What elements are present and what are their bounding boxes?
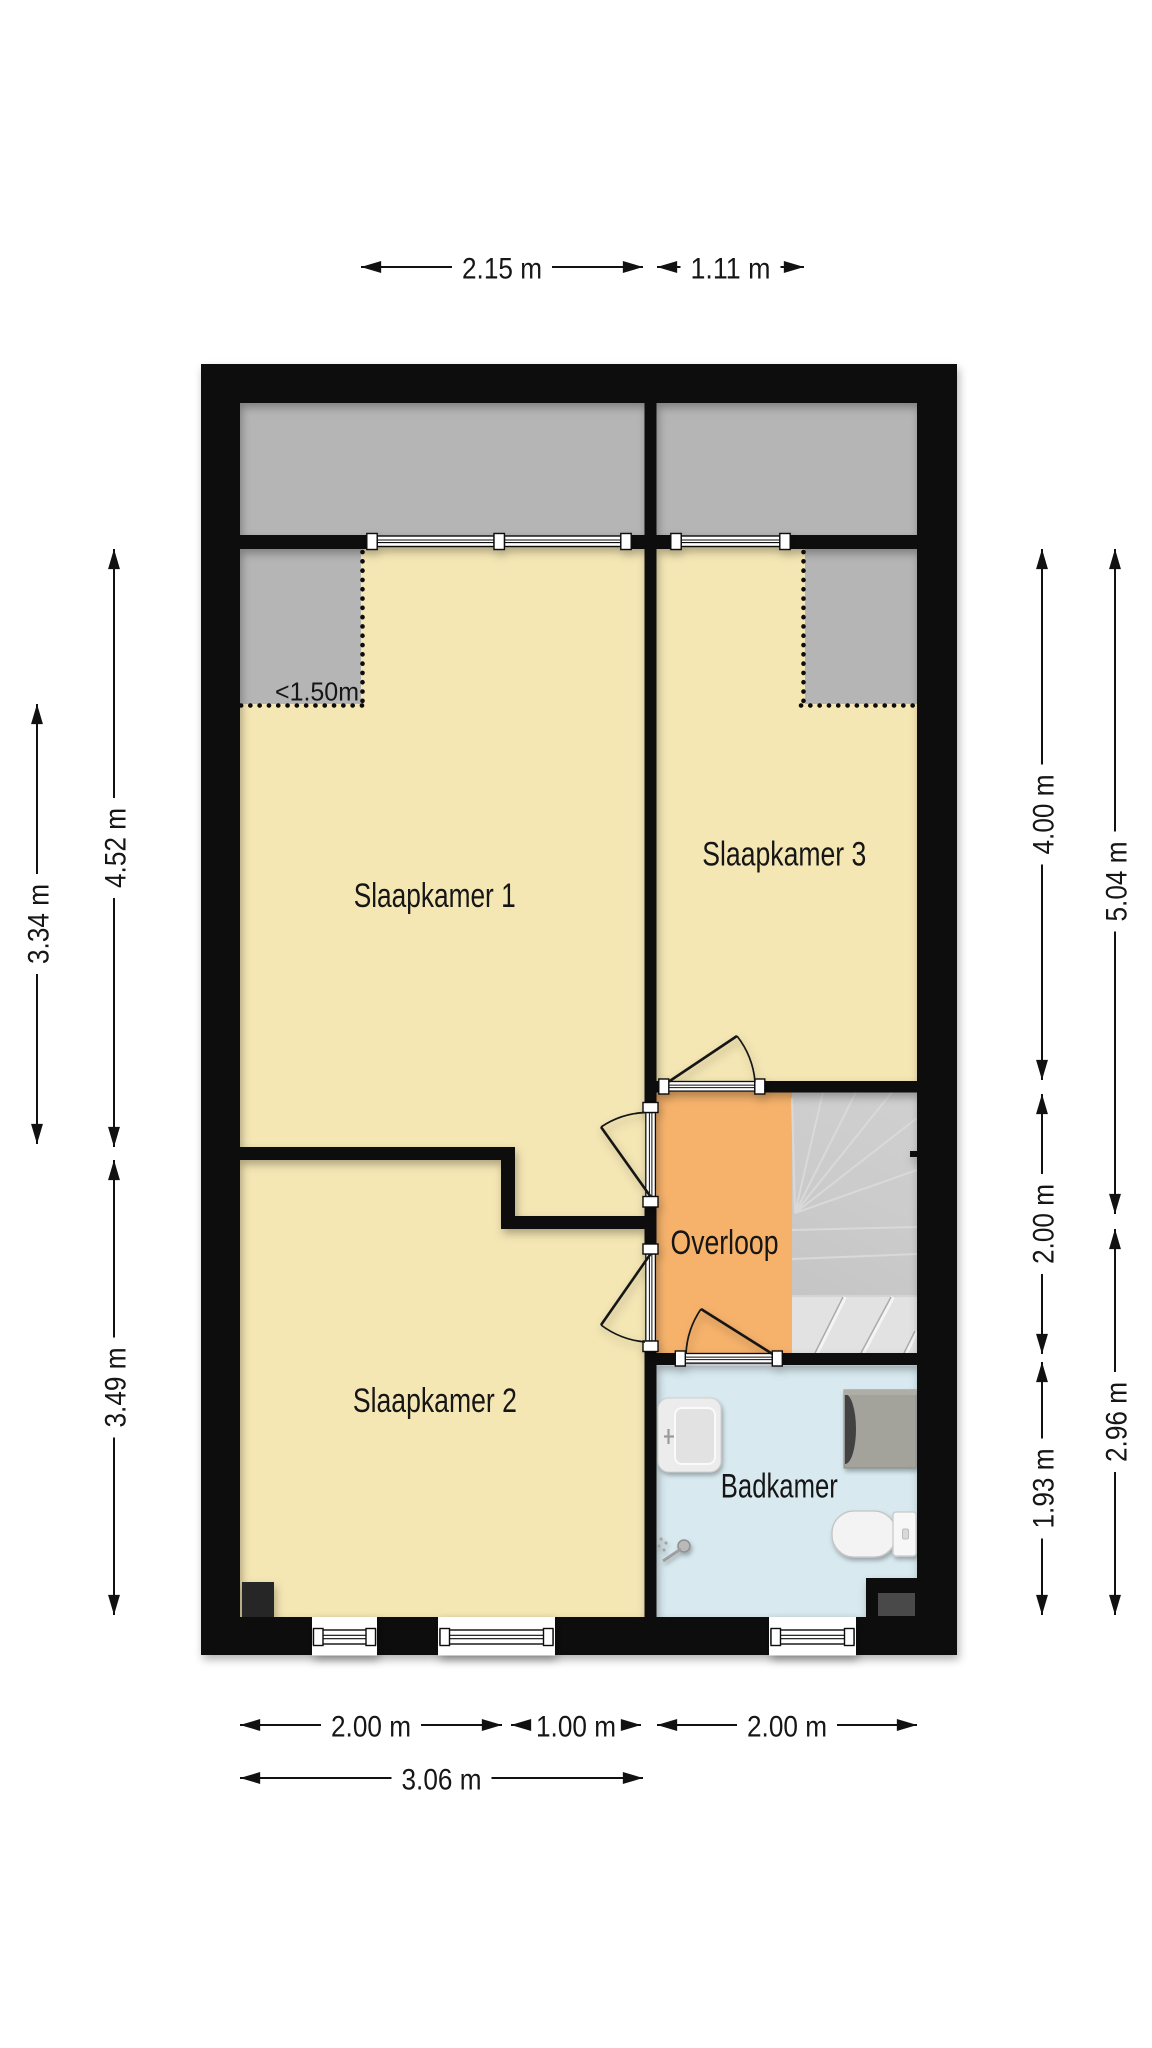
svg-text:<1.50m: <1.50m	[275, 676, 359, 706]
svg-text:Overloop: Overloop	[671, 1224, 779, 1262]
svg-text:1.11 m: 1.11 m	[691, 252, 771, 285]
svg-text:5.04 m: 5.04 m	[1100, 842, 1133, 922]
svg-text:Slaapkamer 3: Slaapkamer 3	[702, 835, 866, 873]
svg-text:Slaapkamer 2: Slaapkamer 2	[353, 1382, 517, 1420]
svg-text:3.06 m: 3.06 m	[402, 1763, 482, 1796]
svg-text:1.93 m: 1.93 m	[1027, 1449, 1060, 1529]
svg-text:2.00 m: 2.00 m	[747, 1710, 827, 1743]
svg-text:3.49 m: 3.49 m	[99, 1348, 132, 1428]
svg-text:1.00 m: 1.00 m	[536, 1710, 616, 1743]
svg-text:4.52 m: 4.52 m	[99, 808, 132, 888]
svg-text:2.15 m: 2.15 m	[462, 252, 542, 285]
svg-text:2.00 m: 2.00 m	[331, 1710, 411, 1743]
svg-text:2.96 m: 2.96 m	[1100, 1382, 1133, 1462]
svg-text:3.34 m: 3.34 m	[22, 884, 55, 964]
svg-text:Slaapkamer 1: Slaapkamer 1	[354, 877, 516, 915]
svg-text:Badkamer: Badkamer	[721, 1468, 838, 1506]
svg-text:2.00 m: 2.00 m	[1027, 1184, 1060, 1264]
svg-text:4.00 m: 4.00 m	[1027, 775, 1060, 855]
